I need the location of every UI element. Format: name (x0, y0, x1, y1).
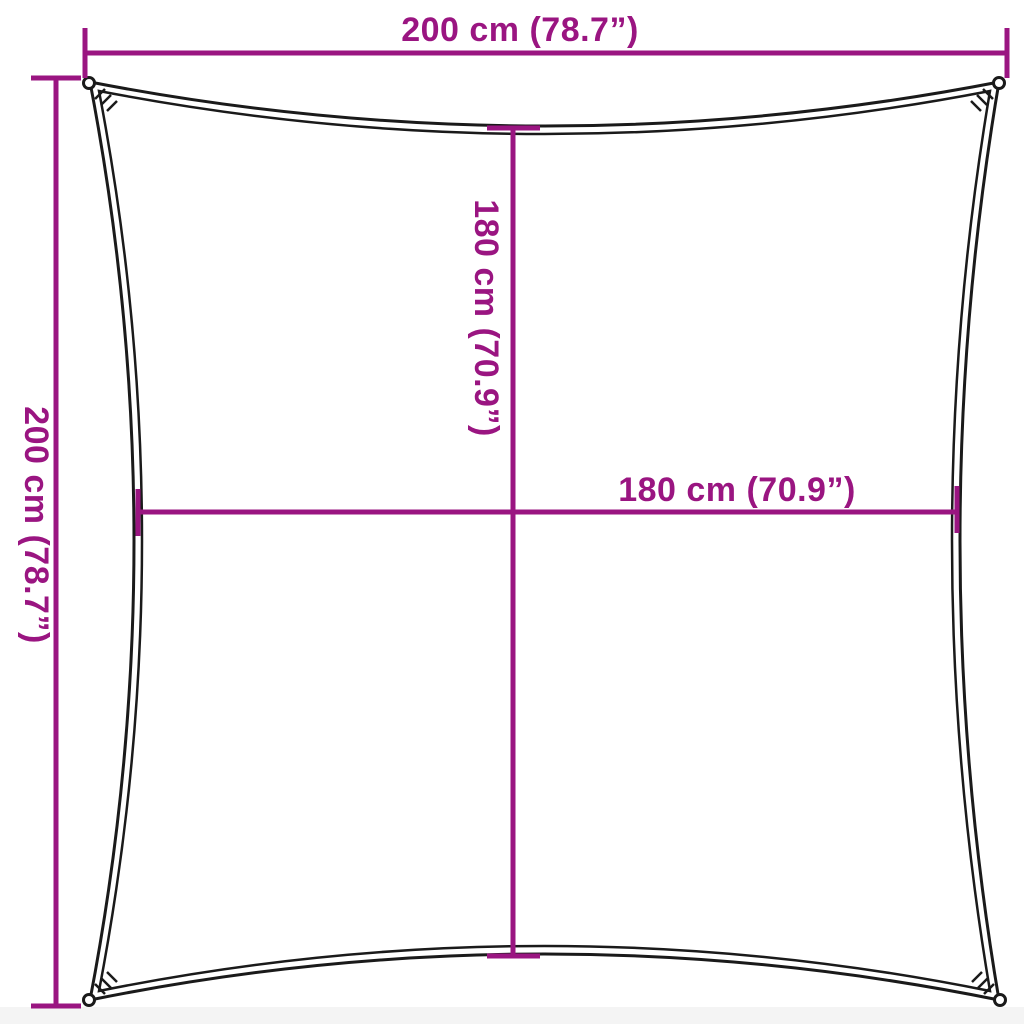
sail-inner-outline (99, 91, 990, 991)
corner-grommet-icon-top-left (84, 78, 95, 89)
top-width-label: 200 cm (78.7”) (401, 13, 639, 47)
corner-grommet-icon-bottom-left (84, 995, 95, 1006)
diagram-canvas (0, 0, 1024, 1024)
inner-height-label: 180 cm (70.9”) (469, 199, 503, 437)
sail-outline (90, 82, 999, 1000)
corner-grommet-icon-top-right (994, 78, 1005, 89)
shade-sail-dimension-diagram: 200 cm (78.7”) 200 cm (78.7”) 180 cm (70… (0, 0, 1024, 1024)
corner-grommet-icon-bottom-right (995, 995, 1006, 1006)
inner-width-label: 180 cm (70.9”) (618, 473, 856, 507)
left-height-label: 200 cm (78.7”) (19, 406, 53, 644)
